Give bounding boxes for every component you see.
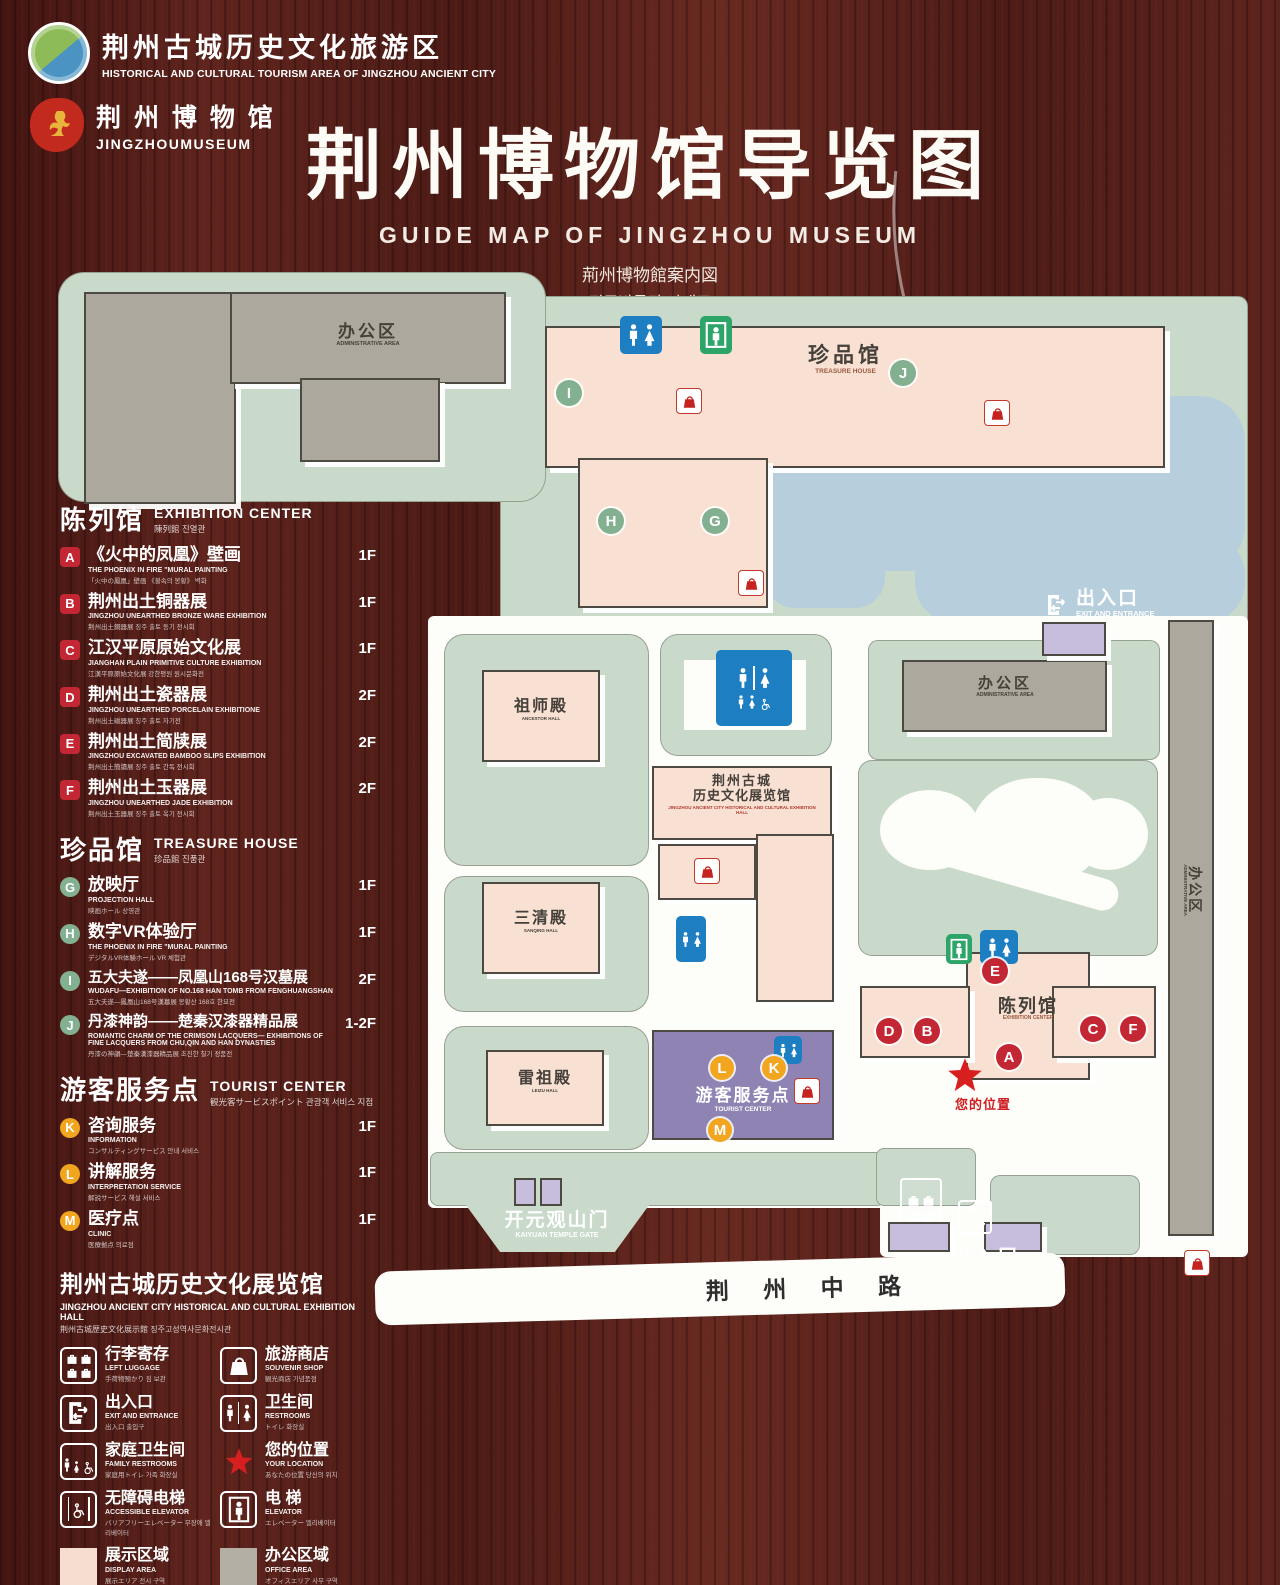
exit-entrance-icon: [60, 1395, 97, 1432]
sanqing-hall-label: 三清殿 SANQING HALL: [482, 910, 600, 933]
office-area-swatch: [220, 1548, 257, 1585]
floor-tag: 1F: [358, 1164, 376, 1181]
floor-tag: 1F: [358, 924, 376, 941]
map-legend-grid: 行李寄存 LEFT LUGGAGE 手荷物預かり 짐 보관 旅游商店 SOUVE…: [60, 1347, 376, 1585]
section-title: 珍品馆: [60, 830, 144, 867]
map-marker-f: F: [1120, 1016, 1146, 1042]
list-item-h: H 数字VR体验厅 THE PHOENIX IN FIRE "MURAL PAI…: [60, 923, 376, 962]
map-marker-i: I: [556, 380, 582, 406]
legend-accessible-elevator: 无障碍电梯 ACCESSIBLE ELEVATOR バリアフリーエレベーター 무…: [60, 1491, 212, 1538]
museum-logo-subtitle: JINGZHOUMUSEUM: [96, 136, 276, 152]
admin-building-east-leg: [300, 378, 440, 462]
list-item-c: C 江汉平原原始文化展 JIANGHAN PLAIN PRIMITIVE CUL…: [60, 639, 376, 678]
exit-entrance-label-northeast: 出入口 EXIT AND ENTRANCE: [1076, 588, 1206, 618]
section-tourist-center: 游客服务点 TOURIST CENTER 観光客サービスポイント 관광객 서비스…: [60, 1070, 376, 1108]
map-marker-c: C: [1080, 1016, 1106, 1042]
list-item-j: J 丹漆神韵——楚秦汉漆器精品展 ROMANTIC CHARM OF THE C…: [60, 1014, 376, 1058]
legend-souvenir-shop: 旅游商店 SOUVENIR SHOP 観光商店 기념품점: [220, 1347, 372, 1384]
map-marker-m: M: [708, 1118, 732, 1142]
section-title: 游客服务点: [60, 1070, 200, 1107]
elevator-sign-treasure: [700, 316, 732, 354]
admin-area-label-nw: 办公区 ADMINISTRATIVE AREA: [258, 322, 478, 347]
map-marker-a: A: [996, 1044, 1022, 1070]
floor-tag: 2F: [358, 734, 376, 751]
badge-f: F: [60, 780, 80, 800]
elevator-arrows-icon-south: [958, 1200, 992, 1234]
tourism-area-subtitle: HISTORICAL AND CULTURAL TOURISM AREA OF …: [102, 68, 496, 80]
badge-m: M: [60, 1211, 80, 1231]
section-exhibition-center: 陈列馆 EXHIBITION CENTER 陳列館 진열관: [60, 500, 376, 537]
section-title-en: JINGZHOU ANCIENT CITY HISTORICAL AND CUL…: [60, 1302, 376, 1322]
section-title-en: EXHIBITION CENTER: [154, 505, 313, 521]
section-title-en: TOURIST CENTER: [210, 1078, 373, 1094]
gate-pillar-west: [514, 1178, 536, 1206]
badge-a: A: [60, 547, 80, 567]
floor-tag: 1F: [358, 640, 376, 657]
legend-left-luggage: 行李寄存 LEFT LUGGAGE 手荷物預かり 짐 보관: [60, 1347, 212, 1384]
badge-h: H: [60, 924, 80, 944]
elevator-sign-exhibition: [946, 934, 972, 964]
lake-inlet: [765, 540, 885, 608]
elevator-icon: [220, 1491, 257, 1528]
souvenir-shop-icon: [220, 1347, 257, 1384]
map-marker-h: H: [598, 508, 624, 534]
page-title-en: GUIDE MAP OF JINGZHOU MUSEUM: [270, 222, 1030, 249]
city-exhibition-hall-label: 荆州古城 历史文化展览馆 JINGZHOU ANCIENT CITY HISTO…: [652, 774, 832, 815]
badge-g: G: [60, 877, 80, 897]
souvenir-shop-icon-1: [676, 388, 702, 414]
section-title-sub: 荆州古城歴史文化展示館 징주고성역사문화전시관: [60, 1324, 376, 1335]
garden-path-3: [1068, 798, 1148, 870]
legend-exit-entrance: 出入口 EXIT AND ENTRANCE 出入口 출입구: [60, 1395, 212, 1432]
badge-c: C: [60, 640, 80, 660]
museum-logo-block: 荆 州 博 物 馆 JINGZHOUMUSEUM: [30, 98, 276, 152]
list-item-d: D 荆州出土瓷器展 JINGZHOU UNEARTHED PORCELAIN E…: [60, 686, 376, 725]
northeast-gate: [1042, 622, 1106, 656]
floor-tag: 1F: [358, 877, 376, 894]
display-area-swatch: [60, 1548, 97, 1585]
list-item-i: I 五大夫遂——凤凰山168号汉墓展 WUDAFU—EXHIBITION OF …: [60, 970, 376, 1007]
legend-restrooms: 卫生间 RESTROOMS トイレ 화장실: [220, 1395, 372, 1432]
floor-tag: 1F: [358, 547, 376, 564]
restroom-sign-treasure: [620, 316, 662, 354]
tourism-area-logo: [28, 22, 90, 84]
leizu-hall-label: 雷祖殿 LEIZU HALL: [486, 1070, 604, 1093]
list-item-l: L 讲解服务 INTERPRETATION SERVICE 解説サービス 해설 …: [60, 1163, 376, 1202]
your-location-label: 您的位置: [928, 1094, 1038, 1113]
list-item-f: F 荆州出土玉器展 JINGZHOU UNEARTHED JADE EXHIBI…: [60, 779, 376, 818]
souvenir-shop-icon-5: [794, 1078, 820, 1104]
admin-building-west-wing: [84, 292, 236, 504]
museum-logo-title: 荆 州 博 物 馆: [96, 98, 276, 134]
map-marker-b: B: [914, 1018, 940, 1044]
section-title: 陈列馆: [60, 500, 144, 537]
map-marker-k: K: [762, 1056, 786, 1080]
map-marker-l: L: [710, 1056, 734, 1080]
section-title-sub: 陳列館 진열관: [154, 523, 313, 535]
restroom-sign-city-hall: [676, 916, 706, 962]
your-location-star-icon: [220, 1443, 257, 1480]
road-label: 荆 州 中 路: [705, 1267, 915, 1307]
legend-your-location: 您的位置 YOUR LOCATION あなたの位置 당신의 위치: [220, 1443, 372, 1480]
map-marker-e: E: [982, 958, 1008, 984]
section-treasure-house: 珍品馆 TREASURE HOUSE 珍品館 진품관: [60, 830, 376, 867]
floor-tag: 1-2F: [345, 1015, 376, 1032]
left-luggage-icon: [60, 1347, 97, 1384]
souvenir-shop-icon-4: [694, 858, 720, 884]
list-item-k: K 咨询服务 INFORMATION コンサルティングサービス 안내 서비스 1…: [60, 1117, 376, 1156]
tourism-area-logo-block: 荆州古城历史文化旅游区 HISTORICAL AND CULTURAL TOUR…: [28, 22, 496, 84]
list-item-g: G 放映厅 PROJECTION HALL 映画ホール 상영관 1F: [60, 876, 376, 915]
exhibition-center-west-wing: [860, 986, 970, 1058]
list-item-m: M 医疗点 CLINIC 医療拠点 의료점 1F: [60, 1210, 376, 1249]
restrooms-icon: [220, 1395, 257, 1432]
museum-logo: [30, 98, 84, 152]
exit-entrance-icon-northeast: [1044, 592, 1070, 618]
souvenir-shop-icon-2: [984, 400, 1010, 426]
badge-j: J: [60, 1015, 80, 1035]
map-marker-j: J: [890, 360, 916, 386]
souvenir-shop-icon-3: [738, 570, 764, 596]
tourism-area-title: 荆州古城历史文化旅游区: [102, 26, 496, 65]
admin-area-label-east: 办公区 ADMINISTRATIVE AREA: [920, 676, 1090, 698]
map-marker-g: G: [702, 508, 728, 534]
list-item-b: B 荆州出土铜器展 JINGZHOU UNEARTHED BRONZE WARE…: [60, 593, 376, 632]
badge-b: B: [60, 594, 80, 614]
badge-k: K: [60, 1118, 80, 1138]
page-title: 荆州博物馆导览图: [270, 104, 1030, 214]
list-item-a: A 《火中的凤凰》壁画 THE PHOENIX IN FIRE "MURAL P…: [60, 546, 376, 585]
floor-tag: 1F: [358, 1118, 376, 1135]
museum-guide-map-poster: { "header": { "logo1": { "zh": "荆州古城历史文化…: [0, 0, 1280, 1451]
family-restrooms-icon: [60, 1443, 97, 1480]
floor-tag: 1F: [358, 1211, 376, 1228]
legend-sidebar: 陈列馆 EXHIBITION CENTER 陳列館 진열관 A 《火中的凤凰》壁…: [60, 500, 376, 1585]
section-title-sub: 観光客サービスポイント 관광객 서비스 지점: [210, 1096, 373, 1108]
floor-tag: 2F: [358, 971, 376, 988]
family-restroom-sign: [716, 650, 792, 726]
legend-display-area: 展示区域 DISPLAY AREA 展示エリア 전시 구역: [60, 1548, 212, 1585]
gate-label: 开元观山门 KAIYUAN TEMPLE GATE: [462, 1210, 652, 1240]
souvenir-shop-icon-6: [1184, 1250, 1210, 1276]
section-city-exhibition-hall: 荆州古城历史文化展览馆 JINGZHOU ANCIENT CITY HISTOR…: [60, 1265, 376, 1335]
road: 荆 州 中 路: [374, 1252, 1065, 1325]
section-title-sub: 珍品館 진품관: [154, 853, 299, 865]
city-exhibition-hall-east-wing: [756, 834, 834, 1002]
gate-pillar-east: [540, 1178, 562, 1206]
list-item-e: E 荆州出土简牍展 JINGZHOU EXCAVATED BAMBOO SLIP…: [60, 733, 376, 772]
section-title-en: TREASURE HOUSE: [154, 835, 299, 851]
floor-tag: 2F: [358, 780, 376, 797]
floor-tag: 1F: [358, 594, 376, 611]
accessible-elevator-icon: [60, 1491, 97, 1528]
legend-elevator: 电 梯 ELEVATOR エレベーター 엘리베이터: [220, 1491, 372, 1538]
legend-office-area: 办公区域 OFFICE AREA オフィスエリア 사무 구역: [220, 1548, 372, 1585]
legend-family-restrooms: 家庭卫生间 FAMILY RESTROOMS 家庭用トイレ 가족 화장실: [60, 1443, 212, 1480]
phoenix-emblem-icon: [42, 108, 72, 142]
map-marker-d: D: [876, 1018, 902, 1044]
admin-area-label-strip: 办公区 ADMINISTRATIVE AREA: [1182, 840, 1202, 940]
exhibition-center-label: 陈列馆 EXHIBITION CENTER: [970, 996, 1086, 1022]
badge-i: I: [60, 971, 80, 991]
badge-d: D: [60, 687, 80, 707]
your-location-star-icon: [946, 1058, 984, 1092]
ancestor-hall-label: 祖师殿 ANCESTOR HALL: [482, 698, 600, 721]
section-title: 荆州古城历史文化展览馆: [60, 1265, 376, 1299]
floor-tag: 2F: [358, 687, 376, 704]
badge-e: E: [60, 734, 80, 754]
badge-l: L: [60, 1164, 80, 1184]
